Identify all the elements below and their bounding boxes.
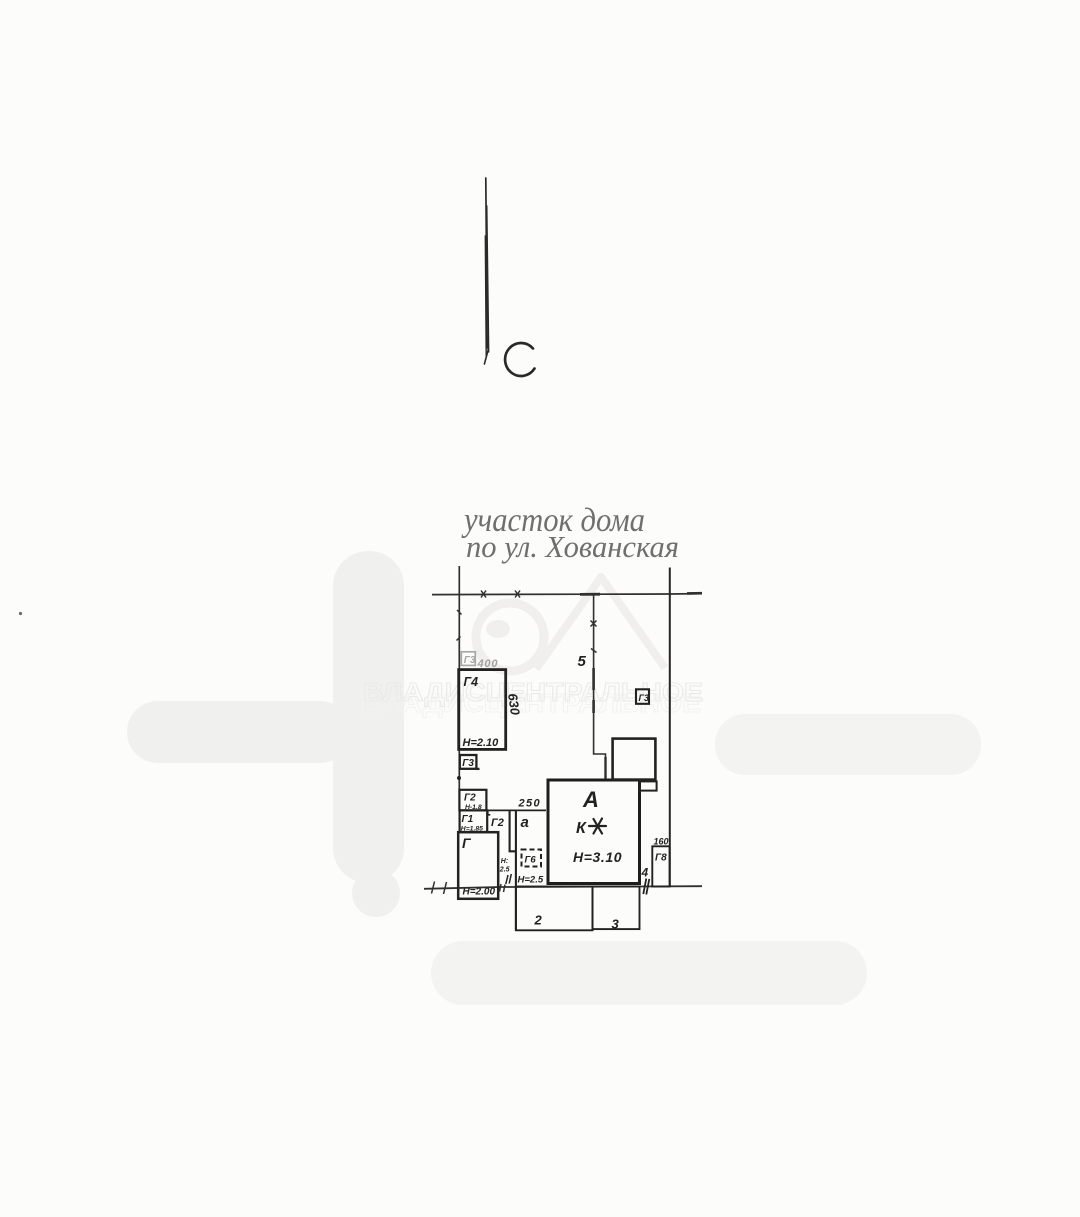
svg-text:Г6: Г6: [525, 855, 537, 866]
svg-text:а: а: [521, 814, 529, 831]
svg-text:А: А: [582, 787, 599, 812]
svg-text:Н:: Н:: [501, 858, 508, 865]
svg-text:Г: Г: [462, 835, 472, 851]
svg-text:Г1: Г1: [462, 814, 474, 825]
svg-text:400: 400: [477, 658, 499, 670]
svg-text:К: К: [576, 820, 587, 837]
svg-text:Н=2.5: Н=2.5: [518, 875, 544, 886]
svg-text:4: 4: [641, 866, 649, 880]
svg-text:250: 250: [518, 798, 542, 810]
svg-text:Н=3.10: Н=3.10: [573, 849, 622, 865]
svg-text:Г2: Г2: [491, 817, 504, 829]
svg-text:5: 5: [578, 653, 587, 670]
svg-text:630: 630: [505, 692, 523, 716]
svg-text:3: 3: [612, 917, 620, 932]
svg-text:2: 2: [534, 913, 543, 928]
svg-text:Н=2.00: Н=2.00: [463, 887, 496, 898]
svg-text:Г3: Г3: [462, 758, 474, 769]
svg-text:Г8: Г8: [655, 853, 667, 864]
svg-text:Н=2.10: Н=2.10: [463, 737, 500, 749]
svg-text:Г2: Г2: [464, 793, 476, 804]
svg-text:Г3: Г3: [639, 693, 650, 703]
svg-text:160: 160: [654, 837, 669, 847]
svg-text:ВЛАДИСЦЕНТРАЛЬНОЕ: ВЛАДИСЦЕНТРАЛЬНОЕ: [363, 677, 703, 707]
svg-text:Г3: Г3: [464, 655, 476, 666]
svg-text:по ул. Хованская: по ул. Хованская: [466, 529, 679, 564]
svg-text:Г4: Г4: [464, 675, 479, 689]
svg-text:2.5: 2.5: [499, 867, 510, 874]
